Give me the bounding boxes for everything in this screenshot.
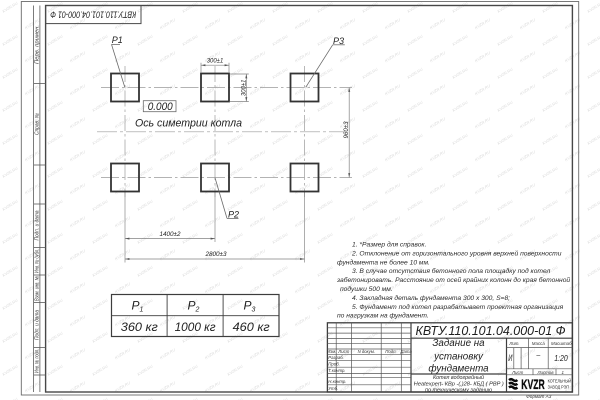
svg-text:Лит.: Лит. <box>508 341 519 346</box>
svg-text:0.000: 0.000 <box>148 101 174 113</box>
svg-text:N докум.: N докум. <box>358 349 375 354</box>
svg-text:Ось симетрии котла: Ось симетрии котла <box>135 117 242 129</box>
svg-text:360 кг: 360 кг <box>121 322 158 334</box>
svg-text:2800±3: 2800±3 <box>204 251 226 258</box>
svg-text:–: – <box>535 353 540 360</box>
svg-text:4. Закладная деталь фундамент: 4. Закладная деталь фундамента 300 х 300… <box>352 294 510 302</box>
svg-text:Лист: Лист <box>337 349 349 354</box>
svg-text:Масштаб: Масштаб <box>551 341 572 346</box>
svg-text:3. В случае отсутствия бетонн: 3. В случае отсутствия бетонного пола пл… <box>352 267 550 275</box>
svg-text:1. *Размер для справок.: 1. *Размер для справок. <box>352 241 427 249</box>
svg-text:Подп. и дата: Подп. и дата <box>35 210 41 240</box>
svg-text:И: И <box>508 353 513 363</box>
svg-text:подушки 500 мм.: подушки 500 мм. <box>340 285 393 293</box>
svg-text:установку: установку <box>433 352 484 363</box>
svg-text:по нагрузкам на фундамент.: по нагрузкам на фундамент. <box>337 312 429 320</box>
svg-text:Формат А3: Формат А3 <box>526 394 552 399</box>
svg-text:Т.контр.: Т.контр. <box>328 368 345 373</box>
svg-text:Разраб.: Разраб. <box>328 355 344 360</box>
svg-text:Взам. инв. №: Взам. инв. № <box>35 276 41 301</box>
svg-text:Котел водогрейный: Котел водогрейный <box>433 374 484 381</box>
svg-text:Листов: Листов <box>537 370 555 375</box>
svg-text:Перв. примен.: Перв. примен. <box>35 25 41 64</box>
svg-text:забетонировать. Расстояние от: забетонировать. Расстояние от осей крайн… <box>336 276 570 284</box>
svg-text:Р2: Р2 <box>228 209 239 219</box>
svg-text:Подп. и дата: Подп. и дата <box>35 310 41 340</box>
svg-text:фундамента: фундамента <box>428 364 489 375</box>
svg-text:Инв. № подл.: Инв. № подл. <box>35 349 41 373</box>
svg-text:фундамента не более 10 мм.: фундамента не более 10 мм. <box>337 258 430 266</box>
svg-text:Проб.: Проб. <box>328 362 340 367</box>
svg-text:КВТУ.110.101.04.000-01 Ф: КВТУ.110.101.04.000-01 Ф <box>416 323 566 338</box>
svg-text:1:20: 1:20 <box>554 354 568 363</box>
svg-text:KVZR: KVZR <box>521 376 545 392</box>
svg-text:960±3: 960±3 <box>343 121 350 138</box>
svg-text:1000 кг: 1000 кг <box>175 322 216 334</box>
svg-text:КВТУ.110.101.04.000-01 Ф: КВТУ.110.101.04.000-01 Ф <box>50 9 136 19</box>
svg-text:460 кг: 460 кг <box>233 322 270 334</box>
svg-text:Дата: Дата <box>400 349 413 354</box>
svg-text:Инв. № дубл.: Инв. № дубл. <box>35 249 41 273</box>
svg-text:Утб.: Утб. <box>328 386 338 391</box>
svg-text:Н.контр.: Н.контр. <box>328 379 346 384</box>
svg-text:Р1: Р1 <box>112 35 123 45</box>
svg-text:по техническому заданию: по техническому заданию <box>425 387 493 393</box>
svg-text:Лист: Лист <box>511 370 524 375</box>
svg-text:Изм.: Изм. <box>327 349 336 354</box>
svg-text:ЗАВОД РЭП: ЗАВОД РЭП <box>548 385 570 390</box>
svg-text:300±1: 300±1 <box>241 80 248 97</box>
svg-text:300±1: 300±1 <box>207 58 224 65</box>
svg-text:Справ. №: Справ. № <box>35 113 41 135</box>
svg-text:Подп.: Подп. <box>385 349 396 354</box>
svg-text:5. Фундамент под котел разраб: 5. Фундамент под котел разрабатывает про… <box>352 303 564 311</box>
svg-text:КОТЕЛЬНЫЙ: КОТЕЛЬНЫЙ <box>548 379 572 384</box>
svg-text:Масса: Масса <box>532 341 546 346</box>
svg-text:1400±2: 1400±2 <box>160 231 181 238</box>
svg-text:Задание на: Задание на <box>432 338 485 349</box>
svg-text:2. Отклонение от горизонтальн: 2. Отклонение от горизонтального уровня … <box>351 249 562 257</box>
